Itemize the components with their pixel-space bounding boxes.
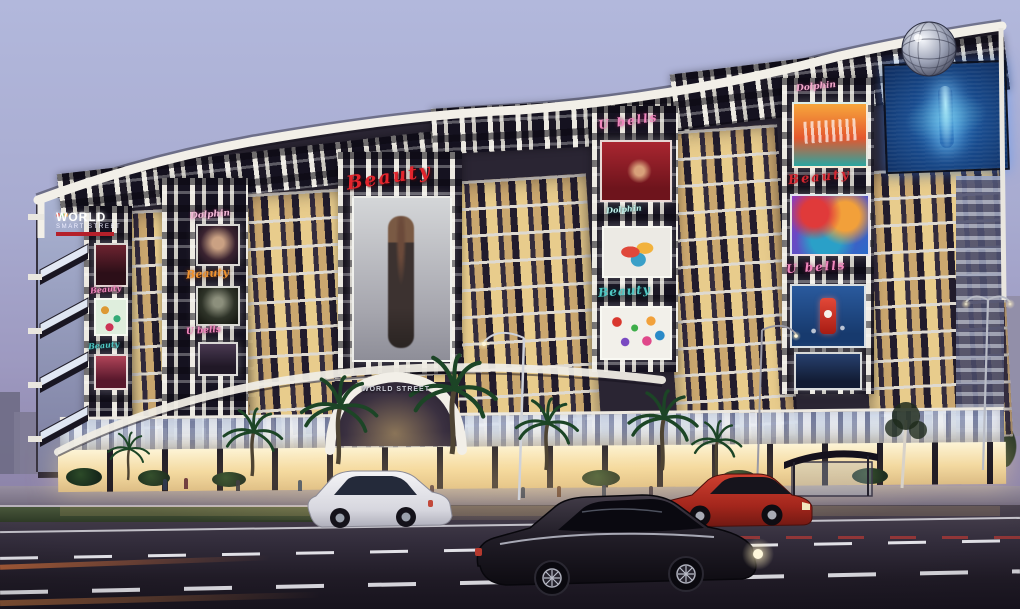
scene-mall-exterior-dusk: Beauty Beauty Dolphin Beauty U bells Bea… xyxy=(0,0,1020,609)
car-white-suv xyxy=(308,471,452,528)
roofline-band xyxy=(38,26,1002,200)
arch-sign: WORLD STREET xyxy=(348,386,444,393)
disco-ball xyxy=(902,22,956,76)
roofline-right-edge xyxy=(1001,28,1004,300)
street-light xyxy=(961,296,1015,470)
street-tree xyxy=(885,402,927,488)
canopy-swoosh xyxy=(58,367,662,452)
palm-tree xyxy=(629,391,697,470)
palm-tree xyxy=(692,421,741,478)
palm-tree xyxy=(224,409,282,476)
escalators xyxy=(28,214,88,447)
palm-tree xyxy=(108,433,149,480)
foreground-overlay xyxy=(0,0,1020,609)
palm-tree xyxy=(516,399,577,470)
bus-shelter xyxy=(784,450,878,498)
